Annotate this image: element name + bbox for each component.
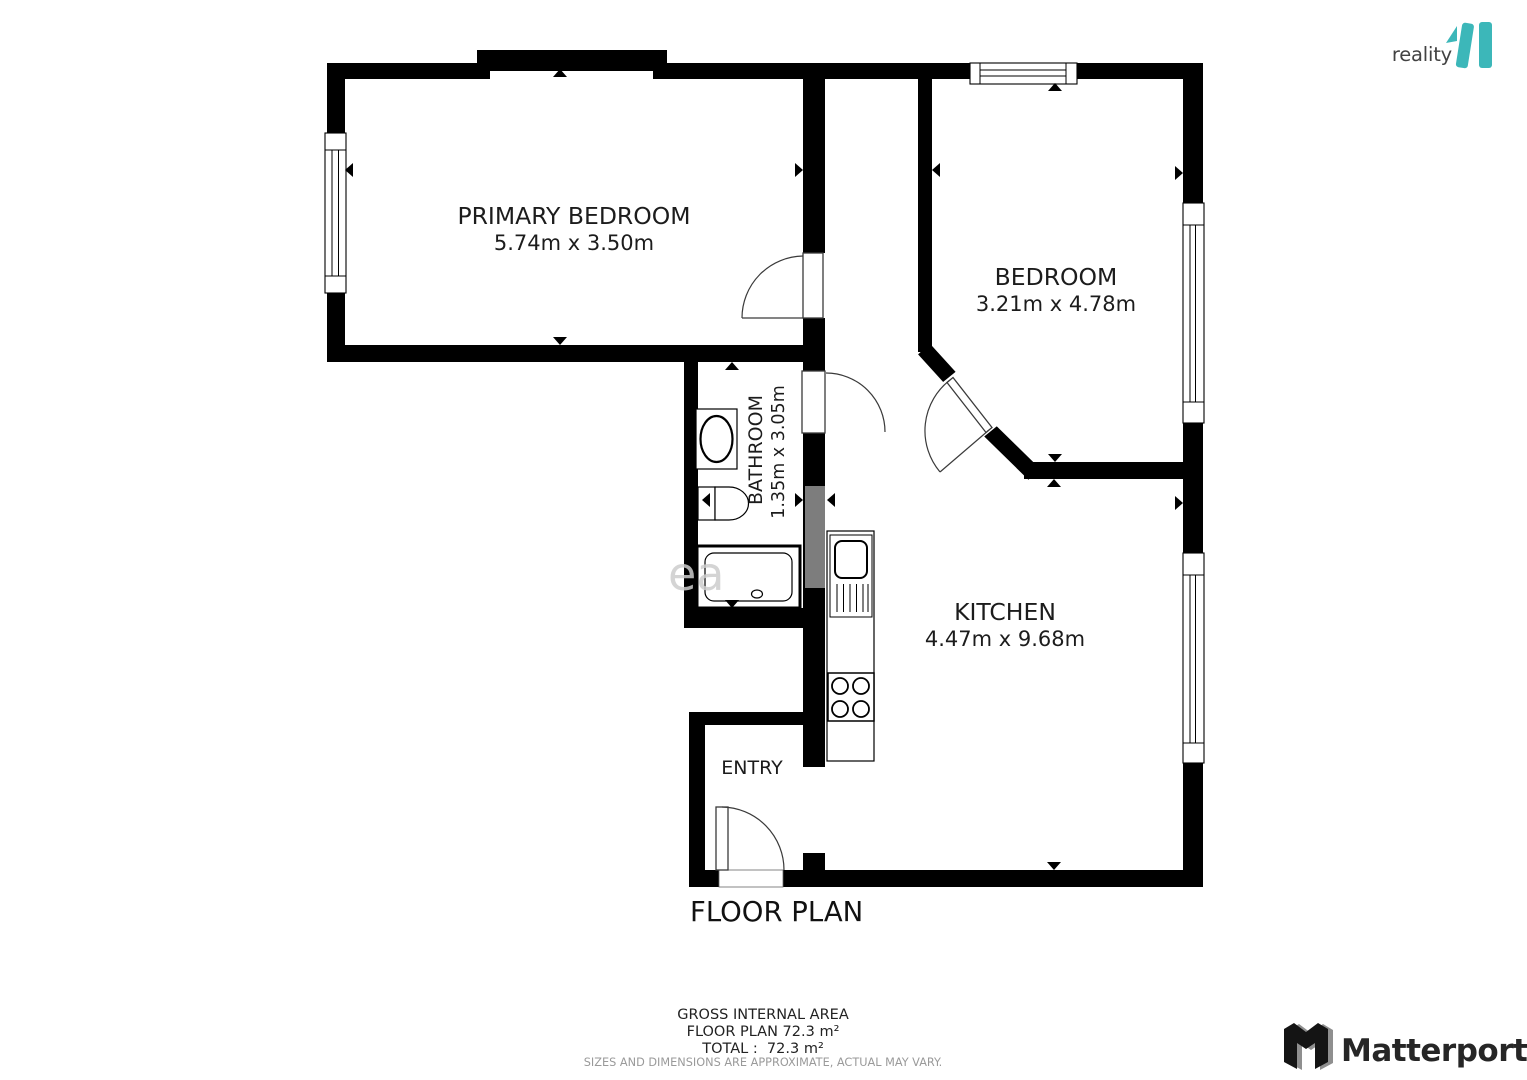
- reality-11-icon: [1446, 22, 1492, 69]
- room-dims-bedroom: 3.21m x 4.78m: [976, 292, 1136, 316]
- bathroom-sink-icon: [696, 409, 737, 469]
- wall-segment: [689, 712, 805, 725]
- total-area-line: TOTAL : 72.3 m²: [701, 1041, 824, 1057]
- room-label-bathroom: BATHROOM: [745, 395, 767, 505]
- room-dims-bathroom: 1.35m x 3.05m: [769, 385, 789, 519]
- room-dims-kitchen: 4.47m x 9.68m: [925, 627, 1085, 651]
- dim-arrow: [795, 163, 803, 177]
- dim-arrow: [553, 337, 567, 345]
- disclaimer-line: SIZES AND DIMENSIONS ARE APPROXIMATE, AC…: [584, 1056, 943, 1069]
- door-primary-bedroom: [742, 253, 823, 318]
- gross-internal-area-line: GROSS INTERNAL AREA: [677, 1007, 849, 1023]
- window-bedroom-top: [970, 63, 1077, 84]
- dim-arrow: [1047, 862, 1061, 870]
- dim-arrow: [725, 362, 739, 370]
- toilet-icon: [698, 487, 749, 520]
- kitchen-sink-icon: [830, 535, 872, 617]
- dim-arrow: [795, 493, 803, 507]
- dim-arrow: [1047, 479, 1061, 487]
- watermark-text: ea: [668, 547, 725, 601]
- wall-segment: [918, 79, 932, 352]
- window-bedroom-right: [1183, 203, 1204, 423]
- floor-plan-page: ea PRIMARY BEDROOM 5.74m x 3.50m BEDROOM…: [0, 0, 1527, 1080]
- dim-arrow: [827, 493, 835, 507]
- plan-title: FLOOR PLAN: [690, 896, 863, 928]
- watermark-bar: [805, 486, 825, 588]
- room-label-primary-bedroom: PRIMARY BEDROOM: [457, 202, 690, 230]
- wall-segment: [477, 50, 667, 64]
- dim-arrow: [1175, 166, 1183, 180]
- door-hallway: [802, 371, 885, 433]
- wall-recess: [490, 71, 653, 79]
- dim-arrow: [932, 163, 940, 177]
- wall-segment: [1024, 462, 1183, 479]
- room-label-bedroom: BEDROOM: [995, 263, 1118, 291]
- reality11-logo: reality: [1392, 22, 1492, 69]
- wall-segment: [684, 608, 825, 628]
- window-primary-left: [325, 133, 346, 293]
- stove-icon: [828, 673, 874, 721]
- door-bedroom: [925, 378, 992, 473]
- room-label-entry: ENTRY: [721, 757, 783, 779]
- wall-segment: [672, 63, 1203, 79]
- matterport-icon: [1284, 1023, 1333, 1070]
- matterport-logo: Matterport: [1284, 1023, 1527, 1070]
- wall-segment: [327, 345, 803, 362]
- matterport-logo-text: Matterport: [1341, 1033, 1527, 1069]
- window-kitchen-right: [1183, 553, 1204, 763]
- reality-logo-text: reality: [1392, 43, 1452, 66]
- wall-segment: [803, 853, 825, 870]
- room-labels: PRIMARY BEDROOM 5.74m x 3.50m BEDROOM 3.…: [457, 202, 1136, 779]
- floor-plan-area-line: FLOOR PLAN 72.3 m²: [687, 1024, 840, 1040]
- room-dims-primary-bedroom: 5.74m x 3.50m: [494, 231, 654, 255]
- room-label-kitchen: KITCHEN: [954, 598, 1056, 626]
- wall-segment: [689, 712, 705, 887]
- dim-arrow: [1048, 454, 1062, 462]
- area-summary: GROSS INTERNAL AREA FLOOR PLAN 72.3 m² T…: [584, 1007, 943, 1069]
- wall-diagonal: [985, 426, 1034, 474]
- dim-arrow: [1175, 496, 1183, 510]
- door-entry: [716, 807, 784, 887]
- floor-plan-canvas: ea PRIMARY BEDROOM 5.74m x 3.50m BEDROOM…: [0, 0, 1527, 1080]
